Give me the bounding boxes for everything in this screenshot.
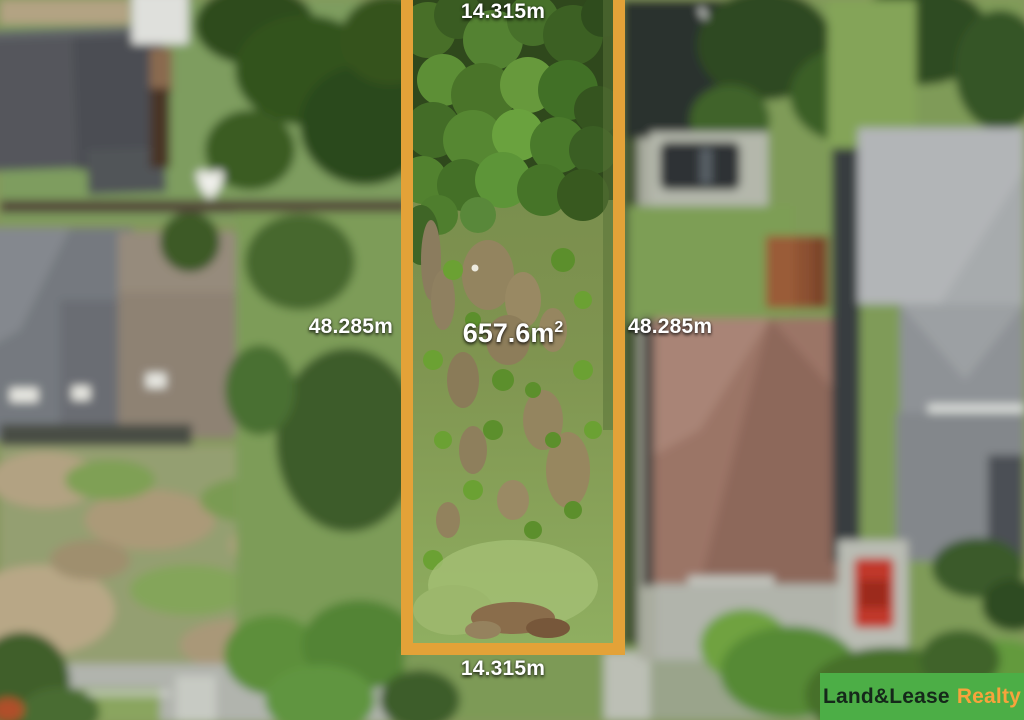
aerial-photo: 14.315m 14.315m 48.285m 48.285m 657.6m2 … <box>0 0 1024 720</box>
dimension-label-top: 14.315m <box>401 0 605 23</box>
logo-text-primary: Land&Lease <box>823 685 950 709</box>
dimension-label-bottom: 14.315m <box>401 657 605 680</box>
area-value: 657.6m <box>463 318 555 348</box>
parked-red-car <box>854 558 894 628</box>
fence-line <box>0 200 408 213</box>
white-outbuilding <box>132 0 188 44</box>
dimension-label-left: 48.285m <box>248 315 393 338</box>
area-superscript: 2 <box>554 319 563 336</box>
neighbour-house-tan-roof <box>0 212 238 440</box>
right-neighbour-block <box>620 0 1024 720</box>
rusty-shed <box>766 236 828 308</box>
parked-dark-car <box>660 142 740 190</box>
green-strip-left-of-lot <box>224 212 420 720</box>
area-label: 657.6m2 <box>430 318 596 349</box>
dimension-label-right: 48.285m <box>628 315 773 338</box>
left-neighbour-block <box>0 0 440 720</box>
realty-logo: Land&Lease Realty <box>820 673 1024 720</box>
logo-text-secondary: Realty <box>957 685 1021 709</box>
terracotta-roof-house <box>642 318 842 618</box>
